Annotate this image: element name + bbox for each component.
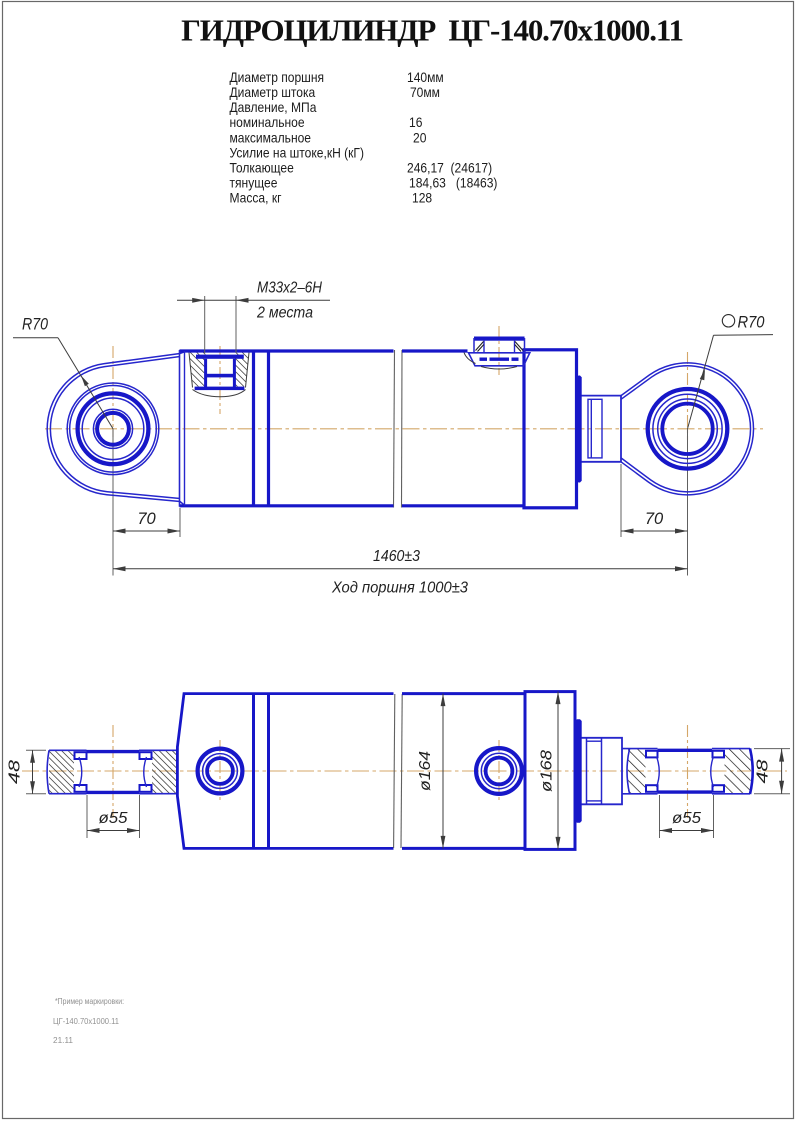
svg-text:М33х2–6Н: М33х2–6Н: [257, 280, 323, 297]
svg-text:тянущее: тянущее: [230, 175, 278, 191]
svg-text:ø55: ø55: [99, 810, 128, 827]
svg-text:21.11: 21.11: [53, 1036, 74, 1045]
svg-text:Усилие на штоке,кН (кГ): Усилие на штоке,кН (кГ): [230, 144, 364, 160]
svg-text:ЦГ-140.70х1000.11: ЦГ-140.70х1000.11: [53, 1017, 120, 1026]
svg-text:ø164: ø164: [417, 751, 434, 791]
svg-text:ГИДРОЦИЛИНДР ЦГ-140.70х1000.1: ГИДРОЦИЛИНДР ЦГ-140.70х1000.11: [181, 13, 683, 48]
svg-text:Толкающее: Толкающее: [230, 159, 294, 175]
svg-text:48: 48: [755, 759, 772, 784]
svg-text:184,63 (18463): 184,63 (18463): [409, 175, 497, 191]
svg-text:Давление, МПа: Давление, МПа: [230, 99, 318, 115]
svg-text:20: 20: [413, 129, 426, 145]
svg-text:70: 70: [645, 510, 664, 528]
svg-text:Диаметр штока: Диаметр штока: [230, 84, 316, 100]
svg-text:Ход поршня 1000±3: Ход поршня 1000±3: [331, 580, 468, 597]
svg-text:Диаметр поршня: Диаметр поршня: [230, 69, 325, 85]
svg-text:ø168: ø168: [539, 750, 556, 792]
svg-text:246,17 (24617): 246,17 (24617): [407, 159, 492, 175]
svg-text:Масса, кг: Масса, кг: [230, 190, 282, 206]
svg-text:128: 128: [412, 190, 432, 206]
svg-text:140мм: 140мм: [407, 69, 444, 85]
svg-text:ø55: ø55: [672, 810, 701, 827]
svg-text:номинальное: номинальное: [230, 114, 305, 130]
svg-text:70мм: 70мм: [410, 84, 440, 100]
svg-text:R70: R70: [22, 316, 49, 334]
svg-text:2 места: 2 места: [256, 305, 313, 322]
svg-text:70: 70: [137, 510, 156, 528]
svg-text:*Пример маркировки:: *Пример маркировки:: [55, 997, 124, 1006]
svg-text:R70: R70: [738, 314, 766, 332]
svg-text:48: 48: [7, 759, 24, 784]
svg-text:1460±3: 1460±3: [373, 548, 420, 565]
svg-text:16: 16: [409, 114, 422, 130]
svg-text:максимальное: максимальное: [230, 129, 312, 145]
